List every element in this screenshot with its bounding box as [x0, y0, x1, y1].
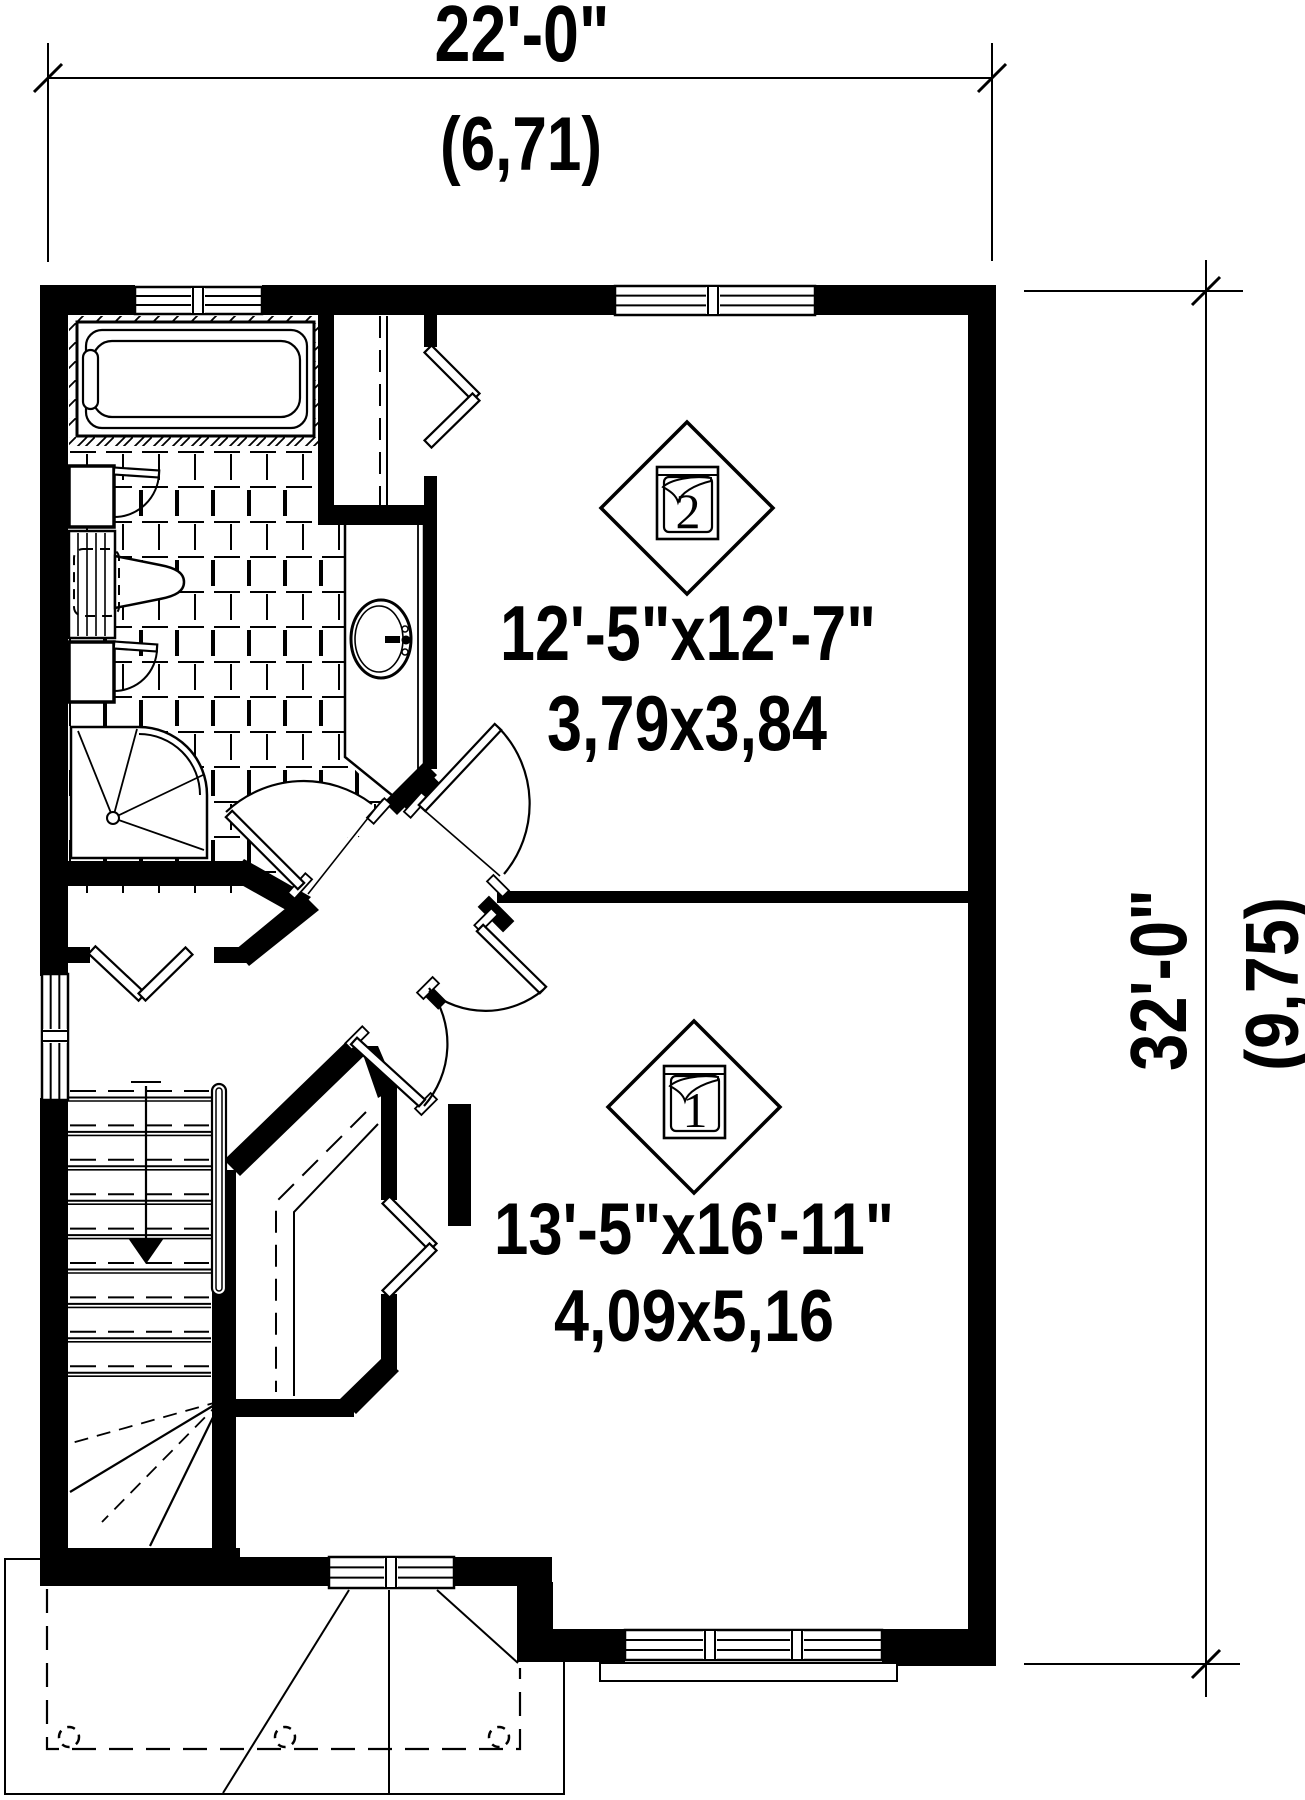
- svg-text:1: 1: [683, 1082, 708, 1138]
- svg-text:4,09x5,16: 4,09x5,16: [554, 1276, 834, 1357]
- svg-text:13'-5"x16'-11": 13'-5"x16'-11": [494, 1189, 894, 1270]
- svg-text:12'-5"x12'-7": 12'-5"x12'-7": [500, 589, 876, 677]
- svg-text:(9,75): (9,75): [1230, 897, 1305, 1071]
- svg-text:2: 2: [676, 483, 701, 539]
- svg-text:(6,71): (6,71): [440, 102, 602, 187]
- svg-text:3,79x3,84: 3,79x3,84: [547, 679, 827, 767]
- svg-text:32'-0": 32'-0": [1114, 889, 1203, 1071]
- svg-text:22'-0": 22'-0": [435, 0, 610, 78]
